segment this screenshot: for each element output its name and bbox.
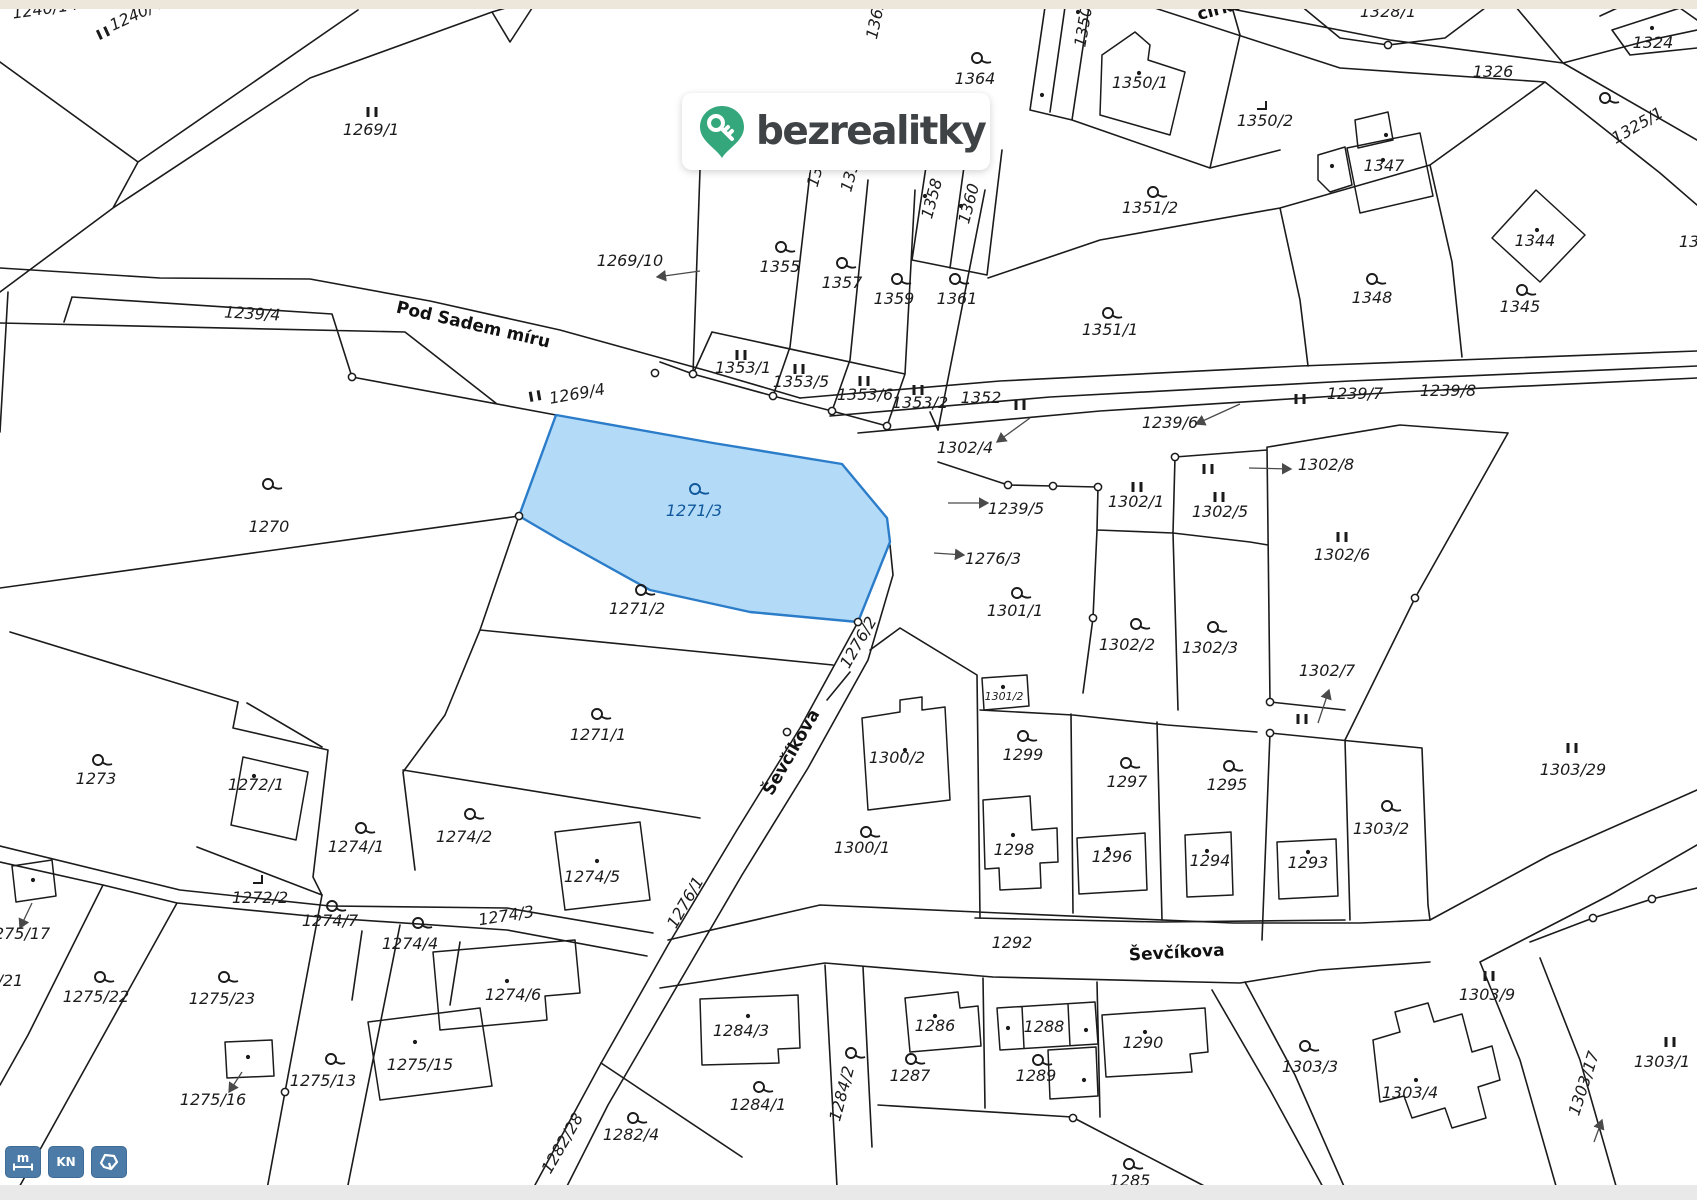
- land-use-icon: [892, 274, 911, 284]
- parcel-label: 1269/10: [597, 251, 663, 270]
- parcel-label: 1275/15: [387, 1055, 453, 1074]
- parcel-label: 1303/4: [1382, 1083, 1438, 1102]
- boundary-node: [769, 392, 776, 399]
- parcel-label: 1303/29: [1540, 760, 1606, 779]
- parcel-label: 1284/3: [713, 1021, 769, 1040]
- building-dot: [1001, 685, 1005, 689]
- bezrealitky-logo: bezrealitky: [682, 93, 990, 170]
- parcel-label: 1271/3: [666, 501, 722, 520]
- parcel-label: 1358: [917, 176, 946, 220]
- boundary-node: [281, 1088, 288, 1095]
- parcel-label: 1269/4: [548, 379, 607, 407]
- parcel-label: 1302/1: [1108, 492, 1164, 511]
- land-use-icon: [93, 755, 112, 765]
- parcel-label: 1239/4: [224, 303, 281, 325]
- parcel-label: 1275/17: [0, 924, 51, 943]
- parcel-label: 1296: [1092, 847, 1133, 866]
- parcel-label: 1270: [249, 517, 290, 536]
- parcel-label: 1274/4: [382, 934, 438, 953]
- land-use-icon: [1124, 1159, 1143, 1169]
- building-dot: [1650, 26, 1654, 30]
- measure-button[interactable]: m: [5, 1146, 41, 1178]
- parcel-label: 1325/1: [1608, 103, 1666, 148]
- parcel-label: 1274/7: [302, 911, 359, 930]
- building-dot: [1040, 93, 1044, 97]
- parcel-label: 1287: [890, 1066, 932, 1085]
- parcel-label: 1275/13: [290, 1071, 356, 1090]
- parcel-label: 1272/1: [228, 775, 284, 794]
- building-dot: [1084, 1028, 1088, 1032]
- parcel-label: 1355: [760, 257, 801, 276]
- land-use-icon: [1208, 622, 1227, 632]
- parcel-label: 1324: [1633, 33, 1674, 52]
- boundary-node: [1411, 594, 1418, 601]
- land-use-icon: [465, 809, 484, 819]
- boundary-type-ii-icon: [1298, 714, 1306, 724]
- building-dot: [413, 1040, 417, 1044]
- boundary-type-ii-icon: [1016, 400, 1024, 410]
- boundary-node: [1589, 914, 1596, 921]
- bottom-strip: [0, 1185, 1697, 1200]
- land-use-icon: [356, 823, 375, 833]
- land-use-icon: [1131, 619, 1150, 629]
- parcel-label: 1302/7: [1299, 661, 1356, 680]
- street-label: Pod Sadem míru: [394, 298, 552, 353]
- land-use-icon: [592, 709, 611, 719]
- kn-button-label: KN: [56, 1155, 75, 1169]
- parcel-label: 1303/1: [1634, 1052, 1690, 1071]
- parcel-label: 1239/7: [1327, 384, 1384, 403]
- parcel-label: 1303/9: [1459, 985, 1515, 1004]
- building-dot: [1330, 164, 1334, 168]
- boundary-type-ii-icon: [368, 107, 376, 117]
- boundary-node: [1648, 895, 1655, 902]
- land-use-icon: [1103, 308, 1122, 318]
- parcel-label: 1344: [1515, 231, 1556, 250]
- land-use-icon: [1600, 93, 1619, 103]
- boundary-type-ii-icon: [97, 27, 108, 39]
- land-use-icon: [754, 1082, 773, 1092]
- building-dot: [246, 1055, 250, 1059]
- boundary-type-ii-icon: [1568, 743, 1576, 753]
- corner-icon: [1257, 101, 1266, 109]
- parcel-label: 1282/4: [603, 1125, 659, 1144]
- parcel-label: 1353/1: [715, 358, 771, 377]
- parcel-label: 1302/5: [1192, 502, 1248, 521]
- parcel-label: 1302/2: [1099, 635, 1155, 654]
- parcel-label: 1276/1: [663, 873, 708, 931]
- parcel-label: 1274/5: [564, 867, 620, 886]
- parcel-label: 1274/2: [436, 827, 492, 846]
- parcel-label: 1351/2: [1122, 198, 1178, 217]
- land-use-icon: [1300, 1041, 1319, 1051]
- parcel-label: 1282/28: [537, 1110, 587, 1177]
- land-use-icon: [1224, 761, 1243, 771]
- land-use-icon: [326, 1054, 345, 1064]
- building-dot: [746, 1014, 750, 1018]
- boundary-node: [1049, 482, 1056, 489]
- boundary-node: [651, 369, 658, 376]
- parcel-label: 1295: [1207, 775, 1248, 794]
- parcel-label: 1345: [1500, 297, 1541, 316]
- parcel-label: 1353/5: [773, 372, 829, 391]
- land-use-icon: [413, 918, 432, 928]
- boundary-node: [1171, 453, 1178, 460]
- parcel-label: 1301/2: [985, 690, 1024, 703]
- parcel-label: 1303/3: [1282, 1057, 1338, 1076]
- parcel-label: 1357: [822, 273, 864, 292]
- land-use-icon: [861, 827, 880, 837]
- boundary-type-ii-icon: [530, 390, 540, 401]
- map-toolbar: m KN: [5, 1146, 127, 1178]
- parcel-label: 1274/6: [485, 985, 541, 1004]
- cadastral-map[interactable]: 1240/141240/451269/11269/101269/41239/41…: [0, 0, 1697, 1200]
- building-dot: [1082, 1078, 1086, 1082]
- boundary-node: [1266, 698, 1273, 705]
- parcel-label: 1300/1: [834, 838, 890, 857]
- boundary-node: [883, 422, 890, 429]
- land-use-icon: [1517, 285, 1536, 295]
- building-dot: [595, 859, 599, 863]
- parcel-label: 1275/21: [0, 971, 23, 990]
- building-dot: [1006, 1026, 1010, 1030]
- land-use-icon: [1121, 758, 1140, 768]
- parcel-label: 13: [1679, 232, 1697, 251]
- boundary-node: [1094, 483, 1101, 490]
- parcel-label: 1301/1: [987, 601, 1043, 620]
- land-use-icon: [837, 258, 856, 268]
- building-dot: [1011, 833, 1015, 837]
- land-use-icon: [95, 972, 114, 982]
- top-strip: [0, 0, 1697, 9]
- land-use-icon: [1012, 588, 1031, 598]
- building-dot: [1414, 1078, 1418, 1082]
- boundary-type-ii-icon: [1666, 1037, 1674, 1047]
- boundary-node: [1069, 1114, 1076, 1121]
- street-label: Ševčíkova: [757, 705, 824, 799]
- parcel-polygon-icon: [97, 1150, 121, 1174]
- parcel-label: 1288: [1024, 1017, 1065, 1036]
- parcel-shape-button[interactable]: [91, 1146, 127, 1178]
- boundary-node: [1384, 41, 1391, 48]
- parcel-label: 1300/2: [869, 748, 925, 767]
- boundary-type-ii-icon: [1133, 482, 1141, 492]
- parcel-label: 1290: [1123, 1033, 1164, 1052]
- parcel-label: 1348: [1352, 288, 1393, 307]
- land-use-icon: [1018, 731, 1037, 741]
- parcel-label: 1350/1: [1112, 73, 1168, 92]
- land-use-icon: [906, 1054, 925, 1064]
- parcel-label: 1361: [937, 289, 978, 308]
- boundary-node: [689, 370, 696, 377]
- parcel-label: 1272/2: [232, 888, 288, 907]
- land-use-icon: [1382, 801, 1401, 811]
- boundary-type-ii-icon: [1485, 971, 1493, 981]
- parcel-label: 1364: [955, 69, 996, 88]
- parcel-label: 1239/8: [1420, 381, 1476, 400]
- parcel-label: 1303/2: [1353, 819, 1409, 838]
- parcel-label: 1284/1: [730, 1095, 786, 1114]
- boundary-node: [1089, 614, 1096, 621]
- parcel-label: 1273: [76, 769, 117, 788]
- building-dot: [1384, 133, 1388, 137]
- land-use-icon: [219, 972, 238, 982]
- parcel-label: 1303/17: [1564, 1048, 1603, 1118]
- parcel-label: 1275/22: [63, 987, 129, 1006]
- parcel-label: 1351/1: [1082, 320, 1138, 339]
- land-use-icon: [628, 1113, 647, 1123]
- boundary-node: [515, 512, 522, 519]
- parcel-label: 1350/2: [1237, 111, 1293, 130]
- corner-icon: [253, 875, 262, 883]
- parcel-label: 1286: [915, 1016, 956, 1035]
- parcel-label: 1271/2: [609, 599, 665, 618]
- parcel-label: 1294: [1190, 851, 1231, 870]
- boundary-node: [1004, 481, 1011, 488]
- parcel-label: 1269/1: [343, 120, 399, 139]
- parcel-label: 1289: [1016, 1066, 1057, 1085]
- boundary-type-ii-icon: [1338, 532, 1346, 542]
- parcel-label: 1293: [1288, 853, 1329, 872]
- parcel-label: 1353/6: [837, 385, 893, 404]
- land-use-icon: [263, 479, 282, 489]
- parcel-label: 1297: [1107, 772, 1149, 791]
- parcel-label: 1298: [994, 840, 1035, 859]
- boundary-type-ii-icon: [1204, 464, 1212, 474]
- parcel-label: 1302/3: [1182, 638, 1238, 657]
- parcel-label: 1271/1: [570, 725, 626, 744]
- parcel-label: 1239/6: [1142, 413, 1198, 432]
- ruler-icon: m: [11, 1150, 35, 1174]
- parcel-label: 1275/23: [189, 989, 255, 1008]
- parcel-label: 1299: [1003, 745, 1044, 764]
- parcel-label: 1326: [1473, 62, 1514, 81]
- parcel-label: 1292: [992, 933, 1033, 952]
- land-use-icon: [846, 1048, 865, 1058]
- parcel-label: 1275/16: [180, 1090, 246, 1109]
- street-label: Ševčíkova: [1128, 939, 1225, 966]
- land-use-icon: [972, 53, 991, 63]
- bezrealitky-logo-text: bezrealitky: [756, 109, 985, 154]
- parcel-label: 1239/5: [988, 499, 1044, 518]
- boundary-node: [1266, 729, 1273, 736]
- land-use-icon: [1148, 187, 1167, 197]
- boundary-node: [828, 407, 835, 414]
- building-dot: [31, 878, 35, 882]
- parcel-label: 1302/6: [1314, 545, 1370, 564]
- parcel-label: 1274/1: [328, 837, 384, 856]
- parcel-label: 1274/3: [477, 902, 536, 930]
- boundary-node: [348, 373, 355, 380]
- parcel-label: 1302/8: [1298, 455, 1354, 474]
- kn-button[interactable]: KN: [48, 1146, 84, 1178]
- parcel-label: 1347: [1364, 156, 1406, 175]
- parcel-label: 1353/2: [892, 393, 948, 412]
- boundary-type-ii-icon: [1215, 492, 1223, 502]
- building-dot: [505, 979, 509, 983]
- parcel-label: 1276/3: [965, 549, 1021, 568]
- parcel-label: 1359: [874, 289, 915, 308]
- parcel-label: 1302/4: [937, 438, 993, 457]
- land-use-icon: [1367, 274, 1386, 284]
- bezrealitky-pin-icon: [698, 104, 746, 160]
- land-use-icon: [776, 242, 795, 252]
- cadastral-map-view: 1240/141240/451269/11269/101269/41239/41…: [0, 0, 1697, 1200]
- svg-text:m: m: [17, 1151, 30, 1165]
- parcel-label: 1352: [961, 388, 1002, 407]
